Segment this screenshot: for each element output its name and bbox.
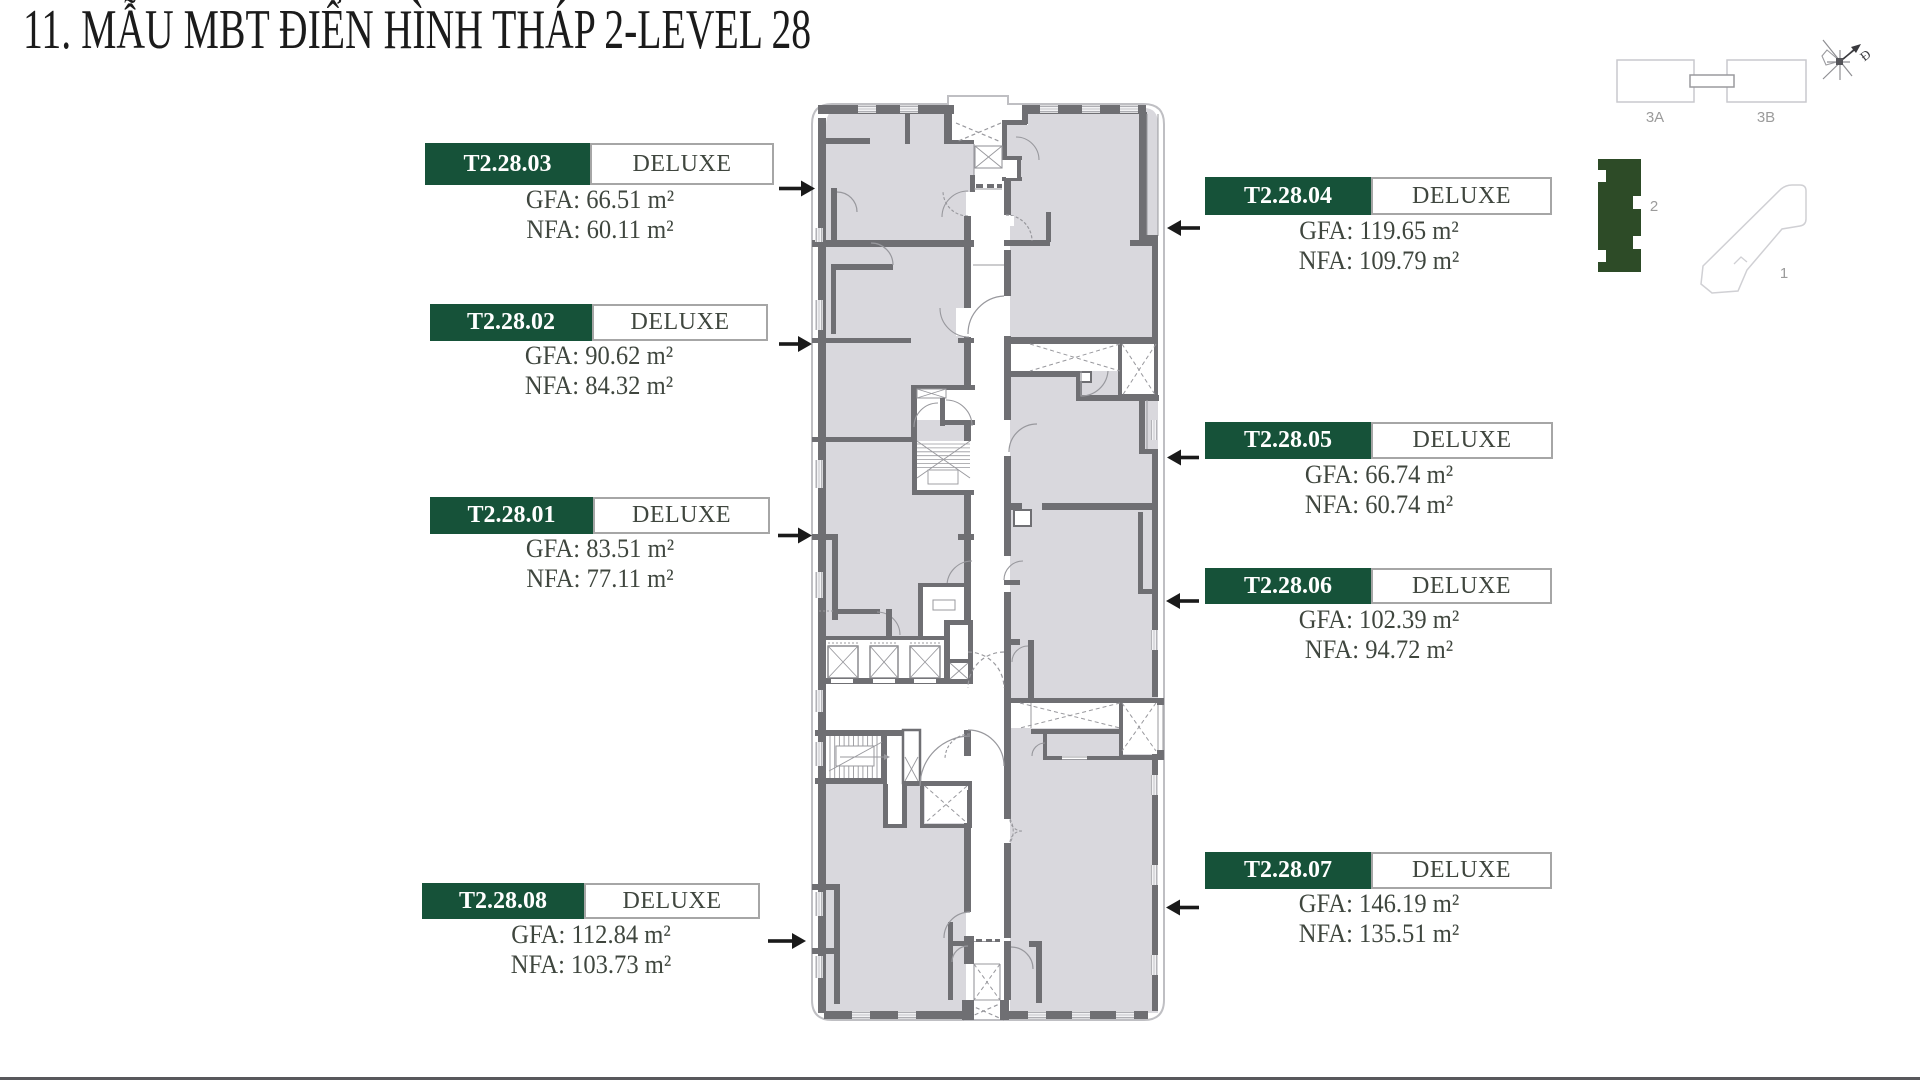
svg-text:3B: 3B: [1757, 109, 1775, 126]
svg-text:3A: 3A: [1646, 109, 1664, 126]
svg-text:1: 1: [1780, 265, 1788, 282]
svg-text:Đ: Đ: [1857, 46, 1874, 64]
svg-text:2: 2: [1650, 198, 1658, 215]
